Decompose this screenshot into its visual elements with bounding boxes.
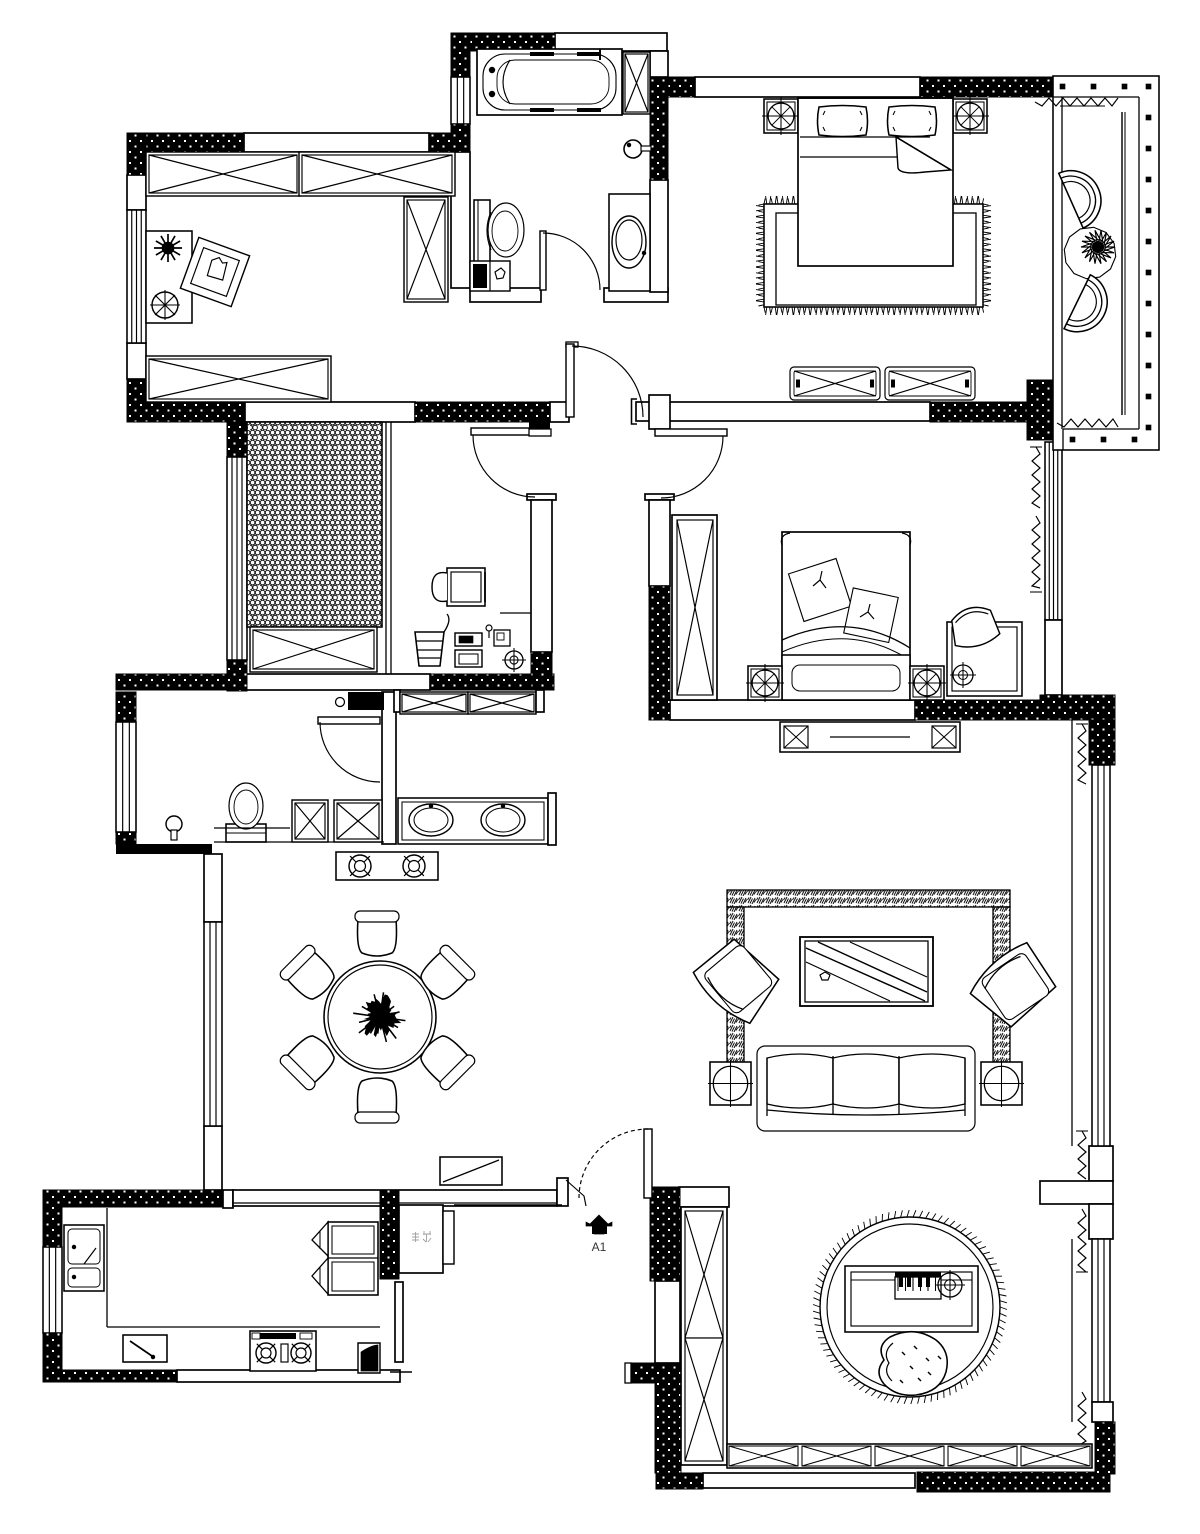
- svg-text:A1: A1: [592, 1240, 607, 1254]
